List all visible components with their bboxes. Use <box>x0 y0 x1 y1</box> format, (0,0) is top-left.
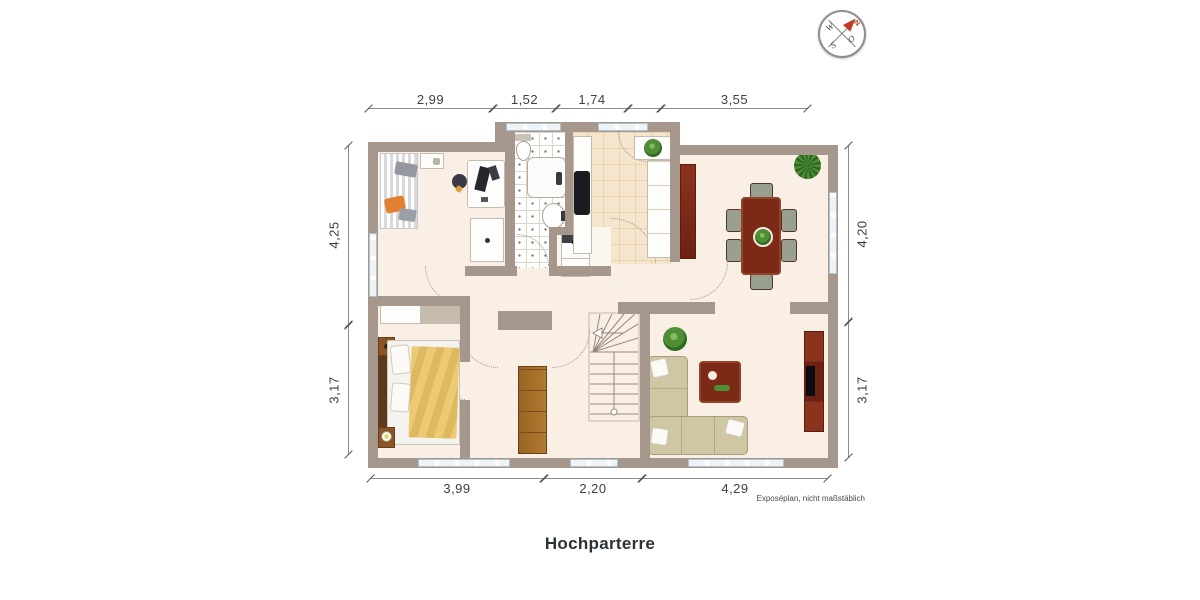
wall-kitchen-dining <box>670 132 680 262</box>
dimension-top-1: 2,99 <box>368 100 493 116</box>
living-plant <box>663 327 687 351</box>
wall-office-south <box>465 266 517 276</box>
kitchen-counter-right <box>647 160 672 258</box>
lounge-ottoman-gray <box>398 208 417 222</box>
shelf-item <box>433 158 440 165</box>
floor-plan: 2,99 1,52 1,74 3,55 3,99 2,20 4,29 4,25 … <box>0 0 1200 600</box>
dimension-label: 4,25 <box>327 221 342 248</box>
dining-chair-left-1 <box>726 209 742 232</box>
dimension-bottom-2: 2,20 <box>544 470 642 486</box>
monitor <box>488 165 500 181</box>
dining-plant <box>794 152 821 179</box>
desk-item <box>481 197 488 202</box>
coffee-table <box>699 361 741 403</box>
wall-top-office <box>368 142 505 152</box>
bed-pillow-1 <box>390 344 412 375</box>
wall-stair-east <box>640 312 650 458</box>
wall-bedroom-north <box>368 296 470 306</box>
cooktop <box>574 171 590 215</box>
dimension-bottom-1: 3,99 <box>370 470 544 486</box>
dimension-top-2: 1,52 <box>493 100 556 116</box>
table-decor-bowl <box>708 371 717 380</box>
compass-icon: N W S O <box>818 10 866 58</box>
dining-chair-right-1 <box>781 209 797 232</box>
hall-wardrobe <box>518 366 547 454</box>
dimension-label: 4,20 <box>855 220 870 247</box>
plan-footnote: Exposéplan, nicht maßstäblich <box>660 494 865 503</box>
wall-bedroom-hall-lower <box>460 400 470 458</box>
dining-chair-bottom <box>750 274 773 290</box>
dimension-label: 1,74 <box>556 92 628 107</box>
dimension-right-1: 4,20 <box>840 145 856 322</box>
wall-dining-living-2 <box>790 302 838 314</box>
wall-bath-kitchen <box>565 132 573 227</box>
dimension-right-2: 3,17 <box>840 322 856 458</box>
window-stairs-bottom <box>570 459 618 467</box>
page-title: Hochparterre <box>0 534 1200 554</box>
kitchen-plant <box>644 139 662 157</box>
dimension-top-4: 3,55 <box>661 100 808 116</box>
dimension-label: 3,17 <box>327 376 342 403</box>
dimension-bottom-3: 4,29 <box>642 470 828 486</box>
dimension-left-2: 3,17 <box>340 325 356 455</box>
window-bedroom-bottom <box>418 459 510 467</box>
wall-utility-south <box>549 266 611 276</box>
window-bath-top <box>506 123 561 131</box>
bedside-lamp <box>381 431 392 442</box>
tv <box>806 366 815 396</box>
dining-chair-left-2 <box>726 239 742 262</box>
wall-bedroom-hall-upper <box>460 296 470 362</box>
bed-blanket <box>408 346 459 439</box>
sofa-pillow-2 <box>650 427 669 446</box>
toilet-tank <box>515 134 531 141</box>
table-decor-green <box>714 385 730 391</box>
shower <box>527 157 566 198</box>
sofa-pillow-1 <box>649 357 669 378</box>
dimension-label: 3,55 <box>661 92 808 107</box>
printer-dot <box>485 238 490 243</box>
window-living-bottom <box>688 459 784 467</box>
window-dining-right <box>829 192 837 274</box>
printer-cabinet <box>470 218 504 262</box>
laundry-divider <box>562 258 589 259</box>
dimension-label: 3,99 <box>370 481 544 496</box>
sideboard <box>680 164 696 259</box>
dimension-label: 2,20 <box>544 481 642 496</box>
dimension-top-3: 1,74 <box>556 100 628 116</box>
dimension-top-jog <box>628 100 661 116</box>
shower-head <box>556 172 562 185</box>
dimension-label: 2,99 <box>368 92 493 107</box>
dimension-label: 3,17 <box>855 376 870 403</box>
dining-chair-right-2 <box>781 239 797 262</box>
dimension-label: 1,52 <box>493 92 556 107</box>
wall-office-bath <box>505 132 515 276</box>
dimension-left-1: 4,25 <box>340 145 356 325</box>
window-kitchen-top <box>598 123 648 131</box>
wall-hall-chunk <box>498 311 552 330</box>
desk <box>467 160 505 208</box>
window-office-left <box>369 233 377 297</box>
wall-shelf <box>420 153 444 169</box>
staircase <box>588 312 640 422</box>
table-centerpiece <box>753 227 773 247</box>
bed-pillow-2 <box>390 382 411 413</box>
wall-top-dining <box>670 145 838 155</box>
wall-dining-living-1 <box>648 302 715 314</box>
